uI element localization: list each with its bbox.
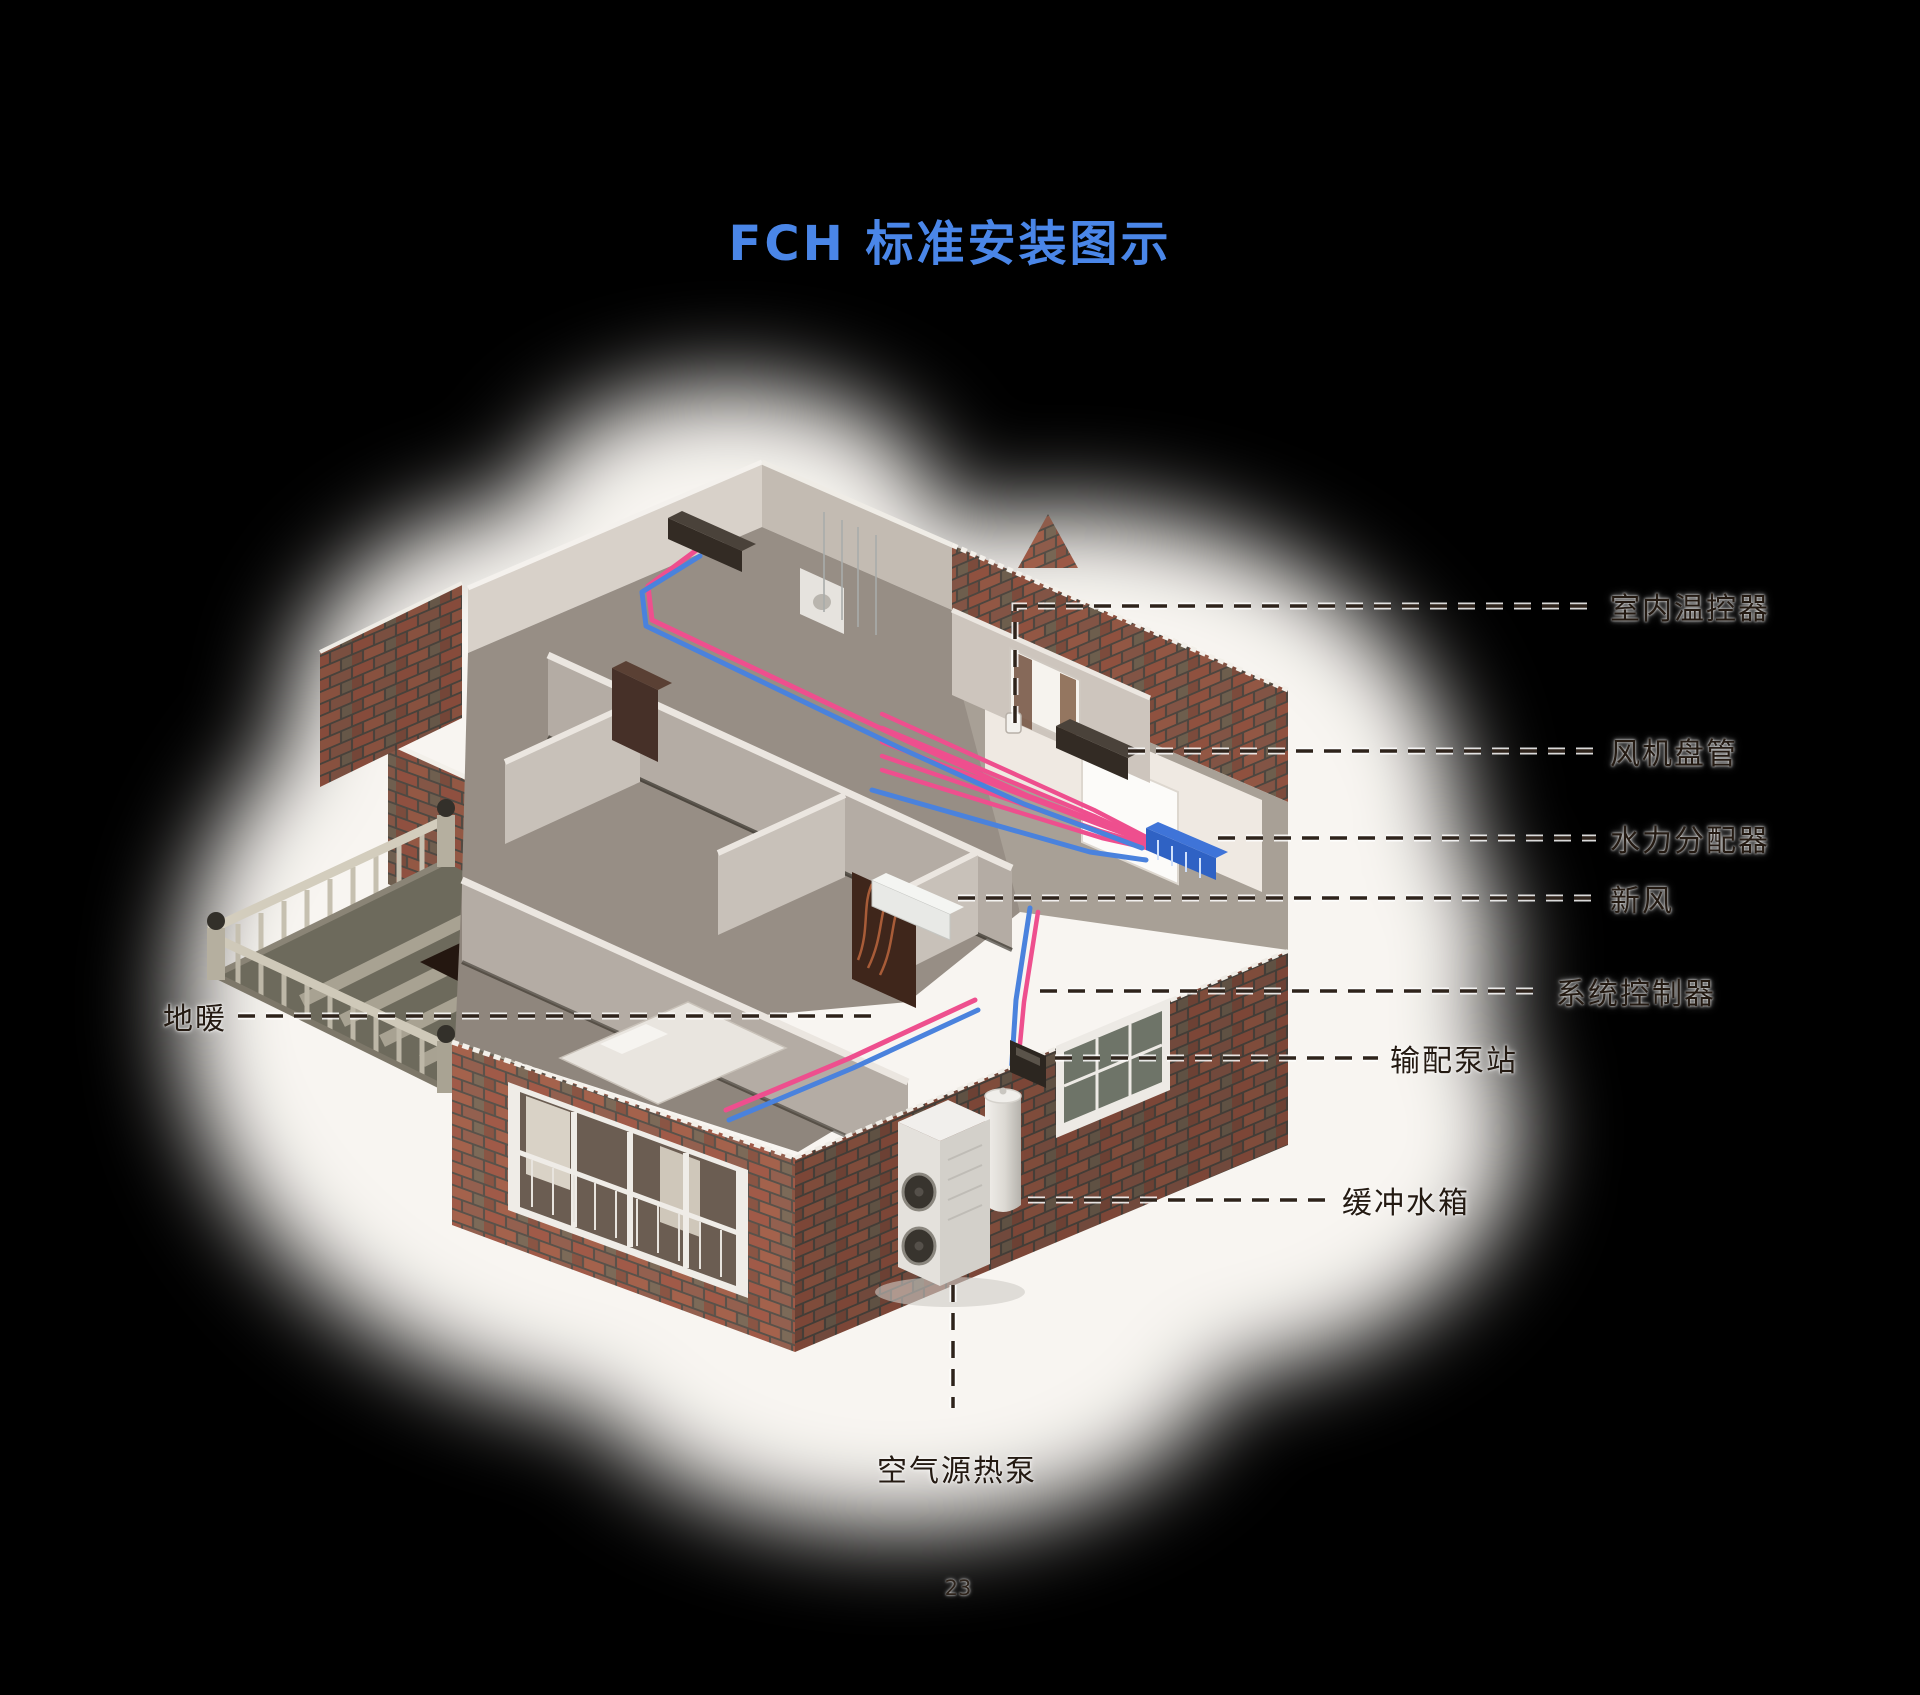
label-hydraulic-distributor: 水力分配器 xyxy=(1610,816,1770,860)
label-fan-coil: 风机盘管 xyxy=(1610,729,1738,773)
buffer-tank xyxy=(985,1088,1021,1213)
label-indoor-thermostat: 室内温控器 xyxy=(1610,584,1770,628)
label-system-controller: 系统控制器 xyxy=(1556,969,1716,1013)
label-buffer-tank: 缓冲水箱 xyxy=(1342,1178,1470,1222)
page-title: FCH 标准安装图示 xyxy=(690,204,1210,274)
page-number: 23 xyxy=(928,1576,988,1600)
heat-pump xyxy=(898,1100,990,1286)
label-fresh-air: 新风 xyxy=(1610,876,1674,920)
label-distribution-pump-station: 输配泵站 xyxy=(1390,1036,1518,1080)
page: FCH 标准安装图示 室内温控器 风机盘管 水力分配器 新风 系统控制器 输配泵… xyxy=(0,0,1920,1695)
label-floor-heating: 地暖 xyxy=(163,994,227,1038)
label-air-source-heat-pump: 空气源热泵 xyxy=(877,1446,1037,1490)
